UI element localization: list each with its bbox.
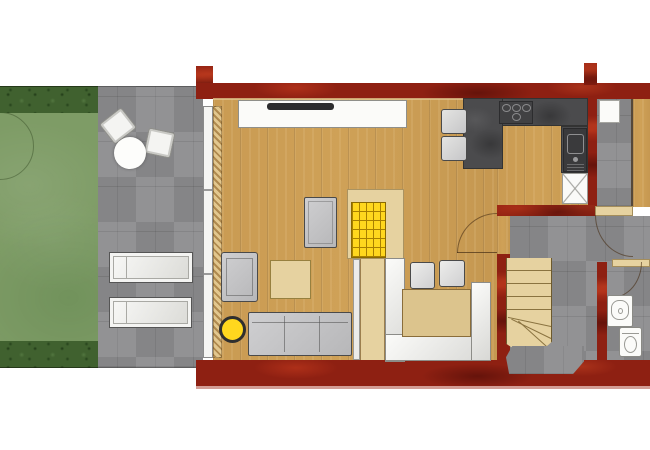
side-table <box>304 197 337 248</box>
armchair-sketch <box>226 258 253 296</box>
wall-kitchen-vertical <box>588 98 597 206</box>
cooktop <box>499 101 533 124</box>
dishwasher <box>562 173 588 204</box>
wall-bottom-shadow <box>196 386 650 389</box>
dining-chair <box>439 260 465 287</box>
wall-bathroom-vertical <box>597 262 607 360</box>
burner-icon <box>522 104 531 112</box>
lounger-pad <box>113 301 188 324</box>
patio-chair <box>144 127 176 158</box>
door-leaf <box>457 252 497 253</box>
bath-sink <box>607 295 633 327</box>
toilet-tank-line <box>622 333 639 334</box>
lounger-headrest-line <box>126 301 127 324</box>
wall-top <box>196 83 650 99</box>
sofa-cushion-divider <box>319 316 320 352</box>
hedge-top <box>0 86 98 113</box>
sink-drainer-lines <box>567 164 584 171</box>
dining-table <box>402 289 471 337</box>
sink-basin <box>567 134 584 154</box>
stair-column-gap <box>353 259 360 360</box>
kitchen-counter-left <box>463 98 503 169</box>
burner-icon <box>502 104 511 112</box>
corner-bench-right <box>471 282 491 361</box>
coffee-table <box>270 260 311 299</box>
sofa <box>248 312 352 356</box>
yellow-stool <box>219 316 246 343</box>
bath-sink-drain-icon <box>618 308 623 314</box>
floor-plan-canvas <box>0 0 650 450</box>
staircase <box>506 258 552 360</box>
lounger-pad <box>113 256 189 279</box>
hall-appliance <box>599 100 620 123</box>
sun-lounger <box>109 252 193 283</box>
sofa-cushion-divider <box>284 316 285 352</box>
wall-bottom <box>196 360 650 386</box>
stair-column <box>360 259 385 360</box>
understair-tile-wedge <box>506 346 584 374</box>
wall-mid-horizontal <box>497 205 595 216</box>
patio-round-table <box>114 137 146 169</box>
side-table-sketch <box>308 201 333 244</box>
kitchen-sink <box>563 128 587 172</box>
bar-stool <box>441 109 467 134</box>
burner-icon <box>512 113 521 121</box>
yellow-grid-stair <box>351 202 386 258</box>
sun-lounger <box>109 297 192 328</box>
tv <box>267 103 334 110</box>
sofa-backrest-line <box>252 322 348 323</box>
stair-treads <box>507 258 551 322</box>
lounger-headrest-line <box>126 256 127 279</box>
sink-faucet-icon <box>573 157 578 162</box>
doorway-floor <box>497 216 510 254</box>
toilet <box>619 327 642 357</box>
dining-chair <box>410 262 435 289</box>
sliding-door-track <box>213 106 222 358</box>
sliding-door-frame <box>203 106 213 358</box>
bar-stool <box>441 136 467 161</box>
side-room-divider <box>631 98 633 206</box>
hedge-bottom <box>0 341 98 368</box>
side-room-floor <box>633 98 650 207</box>
wall-right-stub <box>584 63 597 85</box>
burner-icon <box>512 104 521 112</box>
armchair <box>221 252 258 302</box>
toilet-bowl <box>624 336 637 353</box>
